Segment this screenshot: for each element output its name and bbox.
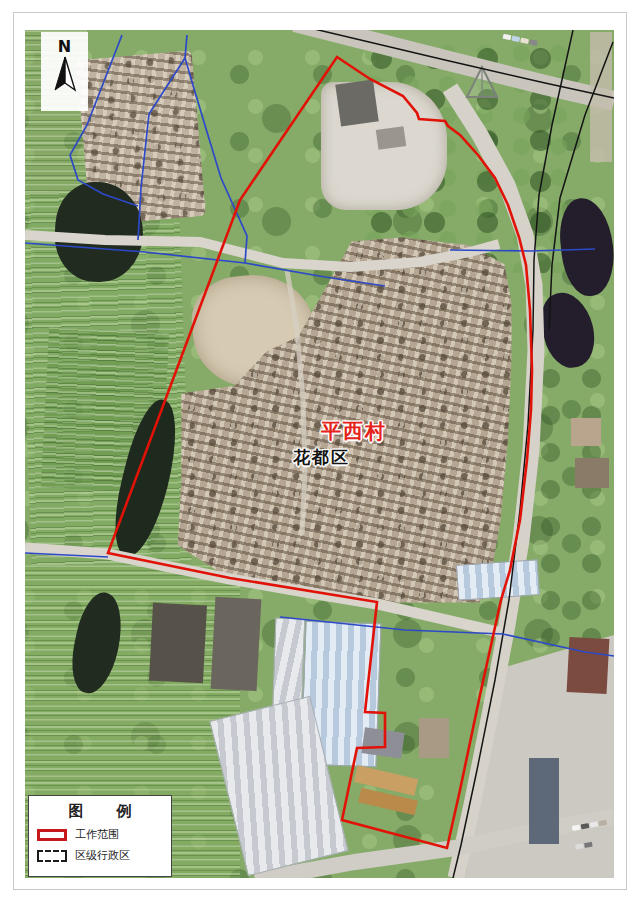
work-scope-label: 工作范围 <box>75 827 119 842</box>
legend-row-work-scope: 工作范围 <box>37 827 163 842</box>
admin-line-south <box>280 617 614 656</box>
admin-line-nw-b <box>185 35 247 263</box>
legend-row-admin-district: 区级行政区 <box>37 848 163 863</box>
satellite-map: 平西村 花都区 N 图 例 工作范围 区级行政区 <box>25 30 614 878</box>
legend: 图 例 工作范围 区级行政区 <box>28 795 172 877</box>
road-line-top <box>310 30 614 98</box>
admin-line-nw-c <box>138 58 185 240</box>
admin-district-label: 区级行政区 <box>75 848 130 863</box>
admin-district-swatch <box>37 850 67 862</box>
work-scope-swatch <box>37 829 67 841</box>
district-label: 花都区 <box>293 446 350 469</box>
road-line-main <box>453 30 573 878</box>
map-page: 平西村 花都区 N 图 例 工作范围 区级行政区 <box>0 0 640 904</box>
admin-line-west <box>25 243 385 286</box>
north-arrow: N <box>41 32 88 111</box>
admin-line-sw <box>25 553 108 557</box>
legend-title: 图 例 <box>51 802 163 821</box>
north-label: N <box>58 38 71 56</box>
village-label: 平西村 <box>321 418 387 445</box>
north-arrow-icon <box>52 56 78 92</box>
